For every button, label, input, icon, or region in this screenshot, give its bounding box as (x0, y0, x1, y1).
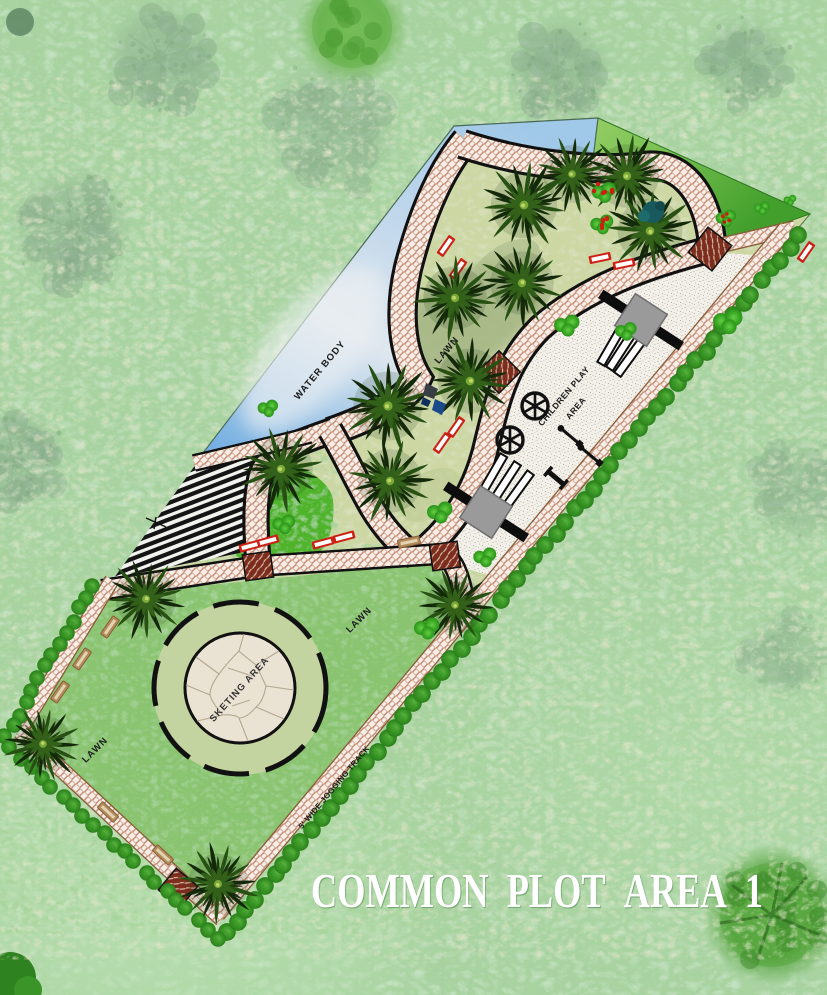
svg-text:COMMON PLOT AREA 1: COMMON PLOT AREA 1 (311, 863, 763, 918)
